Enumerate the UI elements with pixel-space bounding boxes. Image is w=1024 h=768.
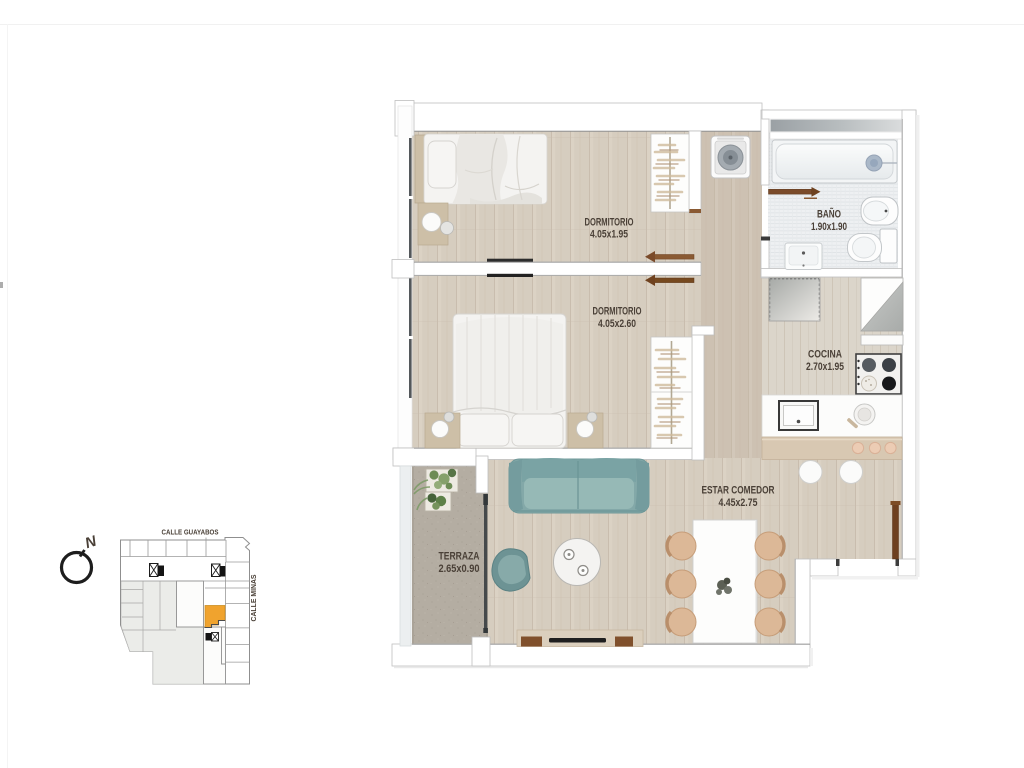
svg-text:TERRAZA: TERRAZA bbox=[439, 551, 480, 563]
svg-text:2.70x1.95: 2.70x1.95 bbox=[806, 361, 844, 373]
svg-text:DORMITORIO: DORMITORIO bbox=[585, 217, 634, 229]
svg-text:4.05x2.60: 4.05x2.60 bbox=[598, 318, 636, 330]
svg-text:COCINA: COCINA bbox=[808, 349, 842, 361]
svg-text:CALLE MINAS: CALLE MINAS bbox=[249, 575, 258, 622]
svg-text:ESTAR COMEDOR: ESTAR COMEDOR bbox=[702, 485, 775, 497]
svg-text:2.65x0.90: 2.65x0.90 bbox=[439, 563, 480, 575]
svg-text:1.90x1.90: 1.90x1.90 bbox=[811, 221, 847, 233]
svg-text:4.45x2.75: 4.45x2.75 bbox=[719, 497, 758, 509]
svg-text:DORMITORIO: DORMITORIO bbox=[593, 306, 642, 318]
svg-text:4.05x1.95: 4.05x1.95 bbox=[590, 229, 628, 241]
svg-text:BAÑO: BAÑO bbox=[817, 208, 841, 221]
svg-text:CALLE GUAYABOS: CALLE GUAYABOS bbox=[162, 528, 219, 537]
